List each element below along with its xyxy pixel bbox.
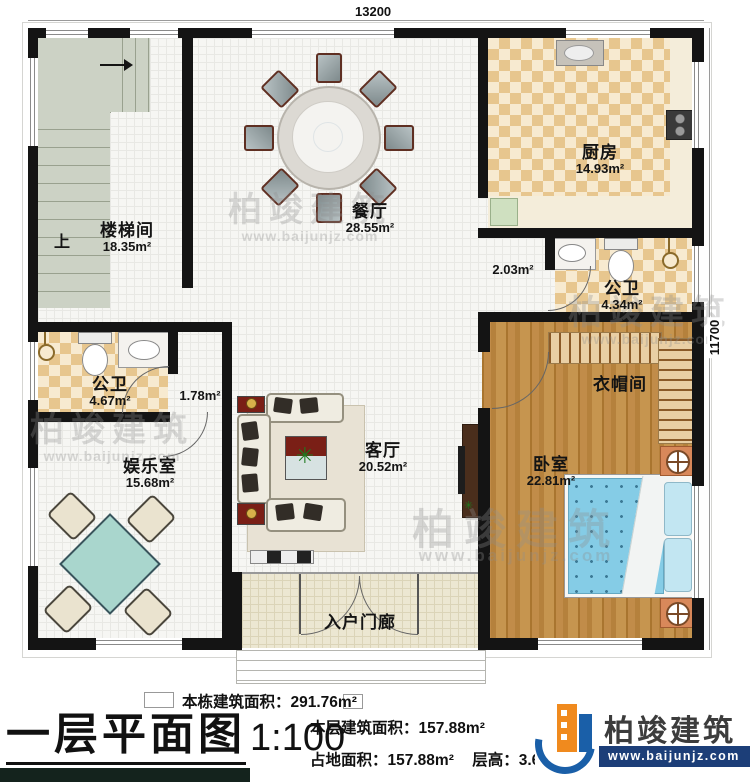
stair-landing <box>38 38 111 113</box>
bottom-frame-bar <box>0 768 250 782</box>
window <box>692 486 704 598</box>
window <box>566 28 650 38</box>
room-label-bath-left: 公卫 4.67m² <box>89 376 130 408</box>
wall-segment <box>222 322 232 638</box>
room-name: 餐厅 <box>346 203 394 221</box>
room-label-dining: 餐厅 28.55m² <box>346 203 394 235</box>
logo-window <box>561 722 567 728</box>
stair-arrow-head-icon <box>124 59 133 71</box>
sofa-cushion <box>241 447 259 467</box>
room-area: 18.35m² <box>100 240 154 254</box>
page-title: 一层平面图 <box>6 712 246 765</box>
wardrobe-top <box>548 332 662 364</box>
bath-left-sink <box>128 340 160 360</box>
wall-segment <box>168 322 178 374</box>
plant-icon: ✳ <box>464 500 476 512</box>
sofa-cushion <box>241 421 259 441</box>
door-leaf <box>299 574 301 634</box>
room-label-bath-right: 公卫 4.34m² <box>601 280 642 312</box>
room-name: 入户门廊 <box>324 614 396 632</box>
bath-left-shower-icon <box>38 344 55 361</box>
up-label: 上 <box>54 228 70 252</box>
bed-pillow <box>664 538 692 592</box>
room-name: 厨房 <box>576 144 624 162</box>
stat-label: 层高： <box>472 752 519 769</box>
window <box>538 638 642 650</box>
room-area: 28.55m² <box>346 221 394 235</box>
sofa-cushion <box>273 397 293 414</box>
bath-left-toilet-tank <box>78 332 112 344</box>
logo-building-icon <box>557 704 577 752</box>
stair-direction-arrow <box>100 64 124 66</box>
corridor-area-label: 2.03m² <box>492 262 533 277</box>
bath-left-toilet <box>82 344 108 376</box>
logo-window <box>561 710 567 716</box>
porch-steps <box>236 650 486 684</box>
lamp-icon <box>666 602 690 626</box>
room-name: 公卫 <box>601 280 642 298</box>
window <box>252 28 394 38</box>
porch-column-marker <box>144 692 174 708</box>
wall-segment <box>232 572 242 650</box>
door-mat <box>250 550 314 564</box>
brand-logo-icon <box>535 702 599 772</box>
room-label-entertainment: 娱乐室 15.68m² <box>123 458 177 490</box>
closet-area-label: 1.78m² <box>179 388 220 403</box>
stat-value: 291.76m² <box>291 694 357 711</box>
stat-floor-area: 本层建筑面积：157.88m² <box>310 716 485 738</box>
window <box>692 62 704 148</box>
dining-chair <box>384 125 414 151</box>
plant-icon: ✳ <box>293 444 317 468</box>
stat-label: 占地面积： <box>310 752 388 769</box>
dimension-right: 11700 <box>707 317 722 358</box>
dimension-line-top <box>28 20 704 21</box>
side-table-lamp-icon <box>246 398 257 409</box>
dining-chair <box>316 193 342 223</box>
room-area: 4.67m² <box>89 394 130 408</box>
dimension-top: 13200 <box>352 4 394 19</box>
side-table-lamp-icon <box>246 508 257 519</box>
bath-right-toilet-tank <box>604 238 638 250</box>
window <box>692 246 704 302</box>
room-name: 客厅 <box>359 442 407 460</box>
bath-right-sink <box>558 244 586 262</box>
room-label-cloakroom: 衣帽间 <box>593 376 647 394</box>
dining-table-center <box>313 122 343 152</box>
room-area: 14.93m² <box>576 162 624 176</box>
room-name: 娱乐室 <box>123 458 177 476</box>
wall-segment <box>28 322 232 332</box>
room-name: 衣帽间 <box>593 376 647 394</box>
wall-segment <box>182 38 193 288</box>
room-name: 楼梯间 <box>100 222 154 240</box>
wall-segment <box>28 412 170 422</box>
window <box>46 28 88 38</box>
bed-pillow <box>664 482 692 536</box>
floorplan-drawing: 13200 11700 <box>0 0 750 690</box>
wall-segment <box>478 572 488 650</box>
window <box>96 638 182 650</box>
sofa-cushion <box>303 503 323 522</box>
room-area: 22.81m² <box>527 474 575 488</box>
room-label-bedroom: 卧室 22.81m² <box>527 456 575 488</box>
stat-footprint: 占地面积：157.88m² 层高：3.6m <box>310 748 554 770</box>
stair-upper-flight <box>110 38 150 112</box>
room-label-living: 客厅 20.52m² <box>359 442 407 474</box>
bath-right-shower-icon <box>662 252 679 269</box>
window <box>130 28 178 38</box>
room-label-porch: 入户门廊 <box>324 614 396 632</box>
room-label-stairwell: 楼梯间 18.35m² <box>100 222 154 254</box>
dining-chair <box>316 53 342 83</box>
title-block: 本栋建筑面积：291.76m² 一层平面图 1:100 本层建筑面积：157.8… <box>0 690 750 782</box>
room-area: 20.52m² <box>359 460 407 474</box>
kitchen-sink-basin <box>564 45 594 61</box>
stat-total-area: 本栋建筑面积：291.76m² <box>182 690 357 712</box>
brand-website: www.baijunjz.com <box>598 746 750 767</box>
logo-window <box>561 734 567 740</box>
room-area: 4.34m² <box>601 298 642 312</box>
wall-segment <box>478 322 490 352</box>
brand-name: 柏竣建筑 <box>604 706 736 750</box>
sofa-cushion <box>241 473 259 492</box>
room-name: 公卫 <box>89 376 130 394</box>
stat-value: 157.88m² <box>388 752 454 769</box>
wardrobe-right <box>658 338 694 444</box>
logo-tower-icon <box>579 714 592 752</box>
kitchen-stove <box>666 110 694 140</box>
door-leaf <box>417 574 419 634</box>
wall-segment <box>478 228 704 238</box>
sofa-cushion <box>299 397 318 414</box>
entrance-threshold <box>242 572 478 574</box>
lamp-icon <box>666 450 690 474</box>
wall-segment <box>478 38 488 198</box>
stat-label: 本层建筑面积： <box>310 720 419 737</box>
window <box>28 468 38 566</box>
room-label-kitchen: 厨房 14.93m² <box>576 144 624 176</box>
sofa-cushion <box>275 503 295 521</box>
window <box>28 58 38 146</box>
kitchen-mat <box>490 198 518 226</box>
tv-icon <box>458 446 465 494</box>
room-area: 15.68m² <box>123 476 177 490</box>
stat-value: 157.88m² <box>419 720 485 737</box>
stat-label: 本栋建筑面积： <box>182 694 291 711</box>
room-name: 卧室 <box>527 456 575 474</box>
dining-chair <box>244 125 274 151</box>
window <box>28 342 38 400</box>
floorplan-page: 13200 11700 <box>0 0 750 782</box>
wall-segment <box>478 312 704 322</box>
bath-right-toilet <box>608 250 634 282</box>
stair-main-flight <box>38 112 110 308</box>
